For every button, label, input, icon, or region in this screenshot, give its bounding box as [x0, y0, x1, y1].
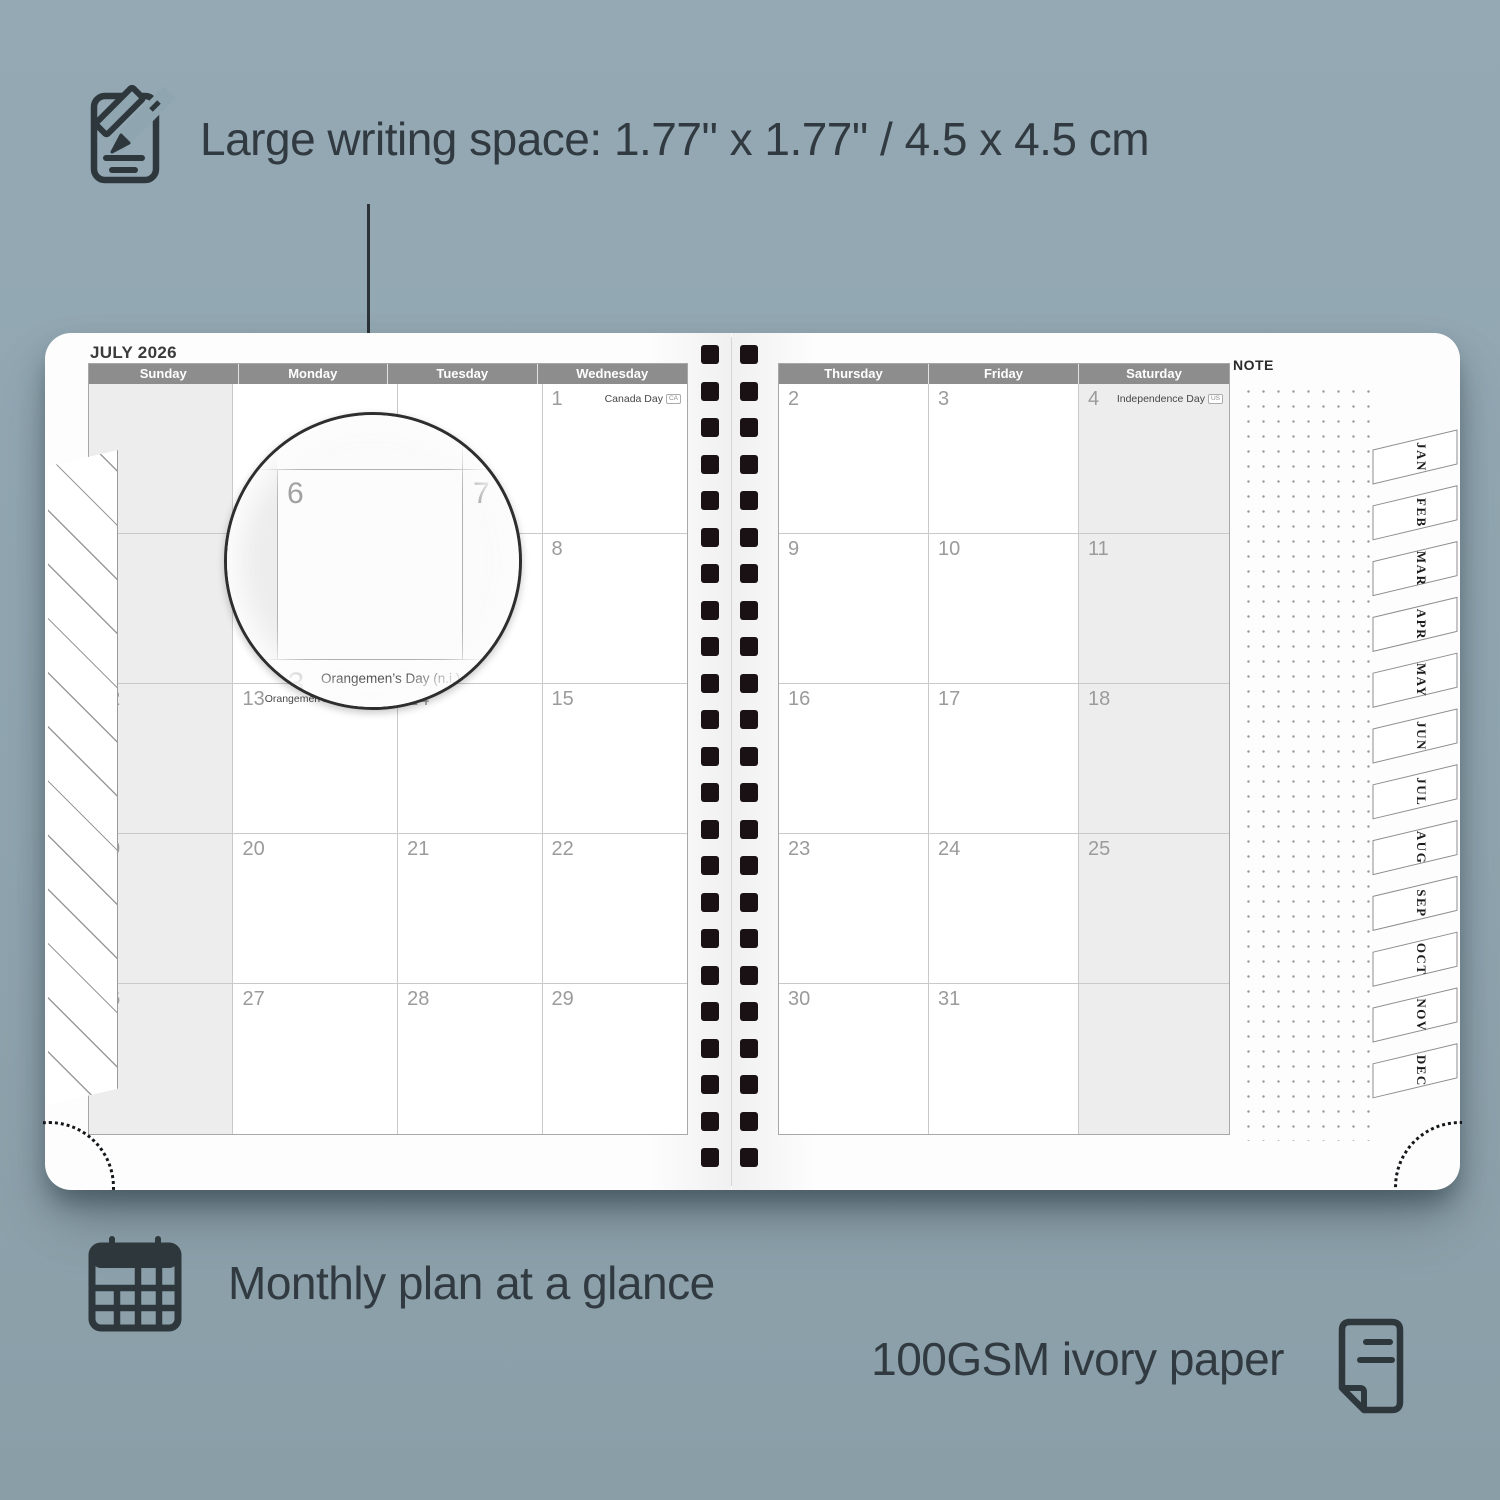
binding-hole [701, 491, 719, 510]
magnified-grid-line [227, 659, 519, 660]
notepad-pencil-icon [88, 80, 180, 191]
binding-hole [740, 382, 758, 401]
binding-hole [701, 1039, 719, 1058]
calendar-cell: 27 [233, 984, 398, 1134]
calendar-cell: 8 [543, 534, 687, 684]
month-tab-label: JUL [1414, 777, 1429, 806]
binding-hole [740, 1039, 758, 1058]
month-tab-label: JAN [1414, 442, 1429, 472]
day-number: 29 [552, 989, 574, 1009]
day-number: 11 [1088, 539, 1109, 559]
binding-hole [701, 382, 719, 401]
day-header-sunday: Sunday [89, 364, 239, 384]
binding-hole [740, 856, 758, 875]
calendar-cell: 30 [779, 984, 929, 1134]
magnified-grid-line [227, 469, 519, 470]
day-header-monday: Monday [239, 364, 389, 384]
month-tab-label: MAY [1414, 663, 1429, 697]
calendar-cell: 21 [398, 834, 542, 984]
month-tab-label: FEB [1414, 498, 1429, 528]
binding-hole [701, 564, 719, 583]
calendar-cell: 16 [779, 684, 929, 834]
binding-hole [701, 345, 719, 364]
stacked-page-edges [48, 450, 118, 1105]
country-badge: US [1208, 394, 1223, 404]
calendar-cell: 23 [779, 834, 929, 984]
binding-hole [701, 966, 719, 985]
binding-hole [701, 1075, 719, 1094]
binding-hole [740, 893, 758, 912]
calendar-cell: 25 [1079, 834, 1229, 984]
binding-hole [701, 929, 719, 948]
calendar-cell: 10 [929, 534, 1079, 684]
magnified-holiday-label: Orangemen’s Day (n.i.) UK [321, 671, 482, 686]
day-number: 28 [407, 989, 429, 1009]
month-tab-label: JUN [1414, 721, 1429, 751]
day-number: 23 [788, 839, 810, 859]
monthly-plan-annotation: Monthly plan at a glance [228, 1256, 715, 1310]
holiday-label: Canada DayCA [605, 393, 681, 405]
day-number: 18 [1088, 689, 1110, 709]
day-number: 25 [1088, 839, 1110, 859]
day-number: 2 [788, 389, 799, 409]
binding-hole [740, 929, 758, 948]
day-number: 22 [552, 839, 574, 859]
day-number: 4 [1088, 389, 1099, 409]
corner-stitch-left [43, 1101, 135, 1190]
writing-space-annotation: Large writing space: 1.77" x 1.77" / 4.5… [200, 112, 1149, 166]
month-title: JULY 2026 [90, 343, 177, 363]
corner-stitch-right [1370, 1101, 1462, 1190]
binding-hole [701, 747, 719, 766]
binding-hole [701, 637, 719, 656]
day-header-saturday: Saturday [1079, 364, 1229, 384]
binding-hole [701, 1148, 719, 1167]
day-number: 8 [552, 539, 563, 559]
binding-hole [701, 1112, 719, 1131]
binding-hole [740, 1075, 758, 1094]
binding-hole [740, 747, 758, 766]
day-number: 10 [938, 539, 960, 559]
day-number: 1 [552, 389, 563, 409]
calendar-cell: 4Independence DayUS [1079, 384, 1229, 534]
calendar-cell: 11 [1079, 534, 1229, 684]
product-image: Large writing space: 1.77" x 1.77" / 4.5… [0, 0, 1500, 1500]
binding-hole [701, 820, 719, 839]
binding-hole [701, 528, 719, 547]
binding-hole [701, 601, 719, 620]
calendar-grid-right: ThursdayFridaySaturday 234Independence D… [778, 363, 1230, 1135]
country-badge: UK [464, 673, 482, 685]
month-tab-label: AUG [1414, 831, 1429, 864]
day-number: 3 [938, 389, 949, 409]
calendar-cell: 2 [779, 384, 929, 534]
binding-hole [740, 710, 758, 729]
calendar-cell: 17 [929, 684, 1079, 834]
binding-hole [701, 455, 719, 474]
binding-hole [740, 418, 758, 437]
calendar-cell: 18 [1079, 684, 1229, 834]
binding-hole [701, 783, 719, 802]
day-header-wednesday: Wednesday [538, 364, 688, 384]
day-number: 30 [788, 989, 810, 1009]
binding-hole [740, 820, 758, 839]
binding-hole [740, 966, 758, 985]
note-label: NOTE [1233, 357, 1274, 373]
binding-hole [701, 418, 719, 437]
paper-sheet-icon [1322, 1316, 1414, 1423]
binding-hole [701, 1002, 719, 1021]
binding-hole [740, 674, 758, 693]
binding-holes-left [701, 345, 719, 1185]
magnified-day-number: 6 [287, 477, 304, 511]
month-tab-stack: JANFEBMARAPRMAYJUNJULAUGSEPOCTNOVDEC [1372, 428, 1460, 1108]
day-number: 21 [407, 839, 429, 859]
day-number: 17 [938, 689, 960, 709]
month-tab-label: MAR [1414, 551, 1429, 587]
calendar-cell: 22 [543, 834, 687, 984]
day-number: 15 [552, 689, 574, 709]
country-badge: CA [666, 394, 681, 404]
magnified-day-number: 7 [473, 477, 490, 511]
calendar-cell: 9 [779, 534, 929, 684]
month-tab-label: APR [1414, 609, 1429, 640]
binding-hole [740, 345, 758, 364]
month-tab-label: OCT [1414, 943, 1429, 976]
holiday-label: Independence DayUS [1117, 393, 1223, 405]
binding-hole [740, 1148, 758, 1167]
note-dot-grid [1238, 381, 1371, 1141]
binding-hole [740, 1002, 758, 1021]
day-number: 20 [242, 839, 264, 859]
binding-hole [740, 1112, 758, 1131]
calendar-cell: 28 [398, 984, 542, 1134]
binding-hole [701, 893, 719, 912]
binding-hole [740, 528, 758, 547]
binding-hole [701, 856, 719, 875]
binding-hole [740, 637, 758, 656]
month-tab-label: SEP [1414, 889, 1429, 917]
day-number: 24 [938, 839, 960, 859]
calendar-cell: 24 [929, 834, 1079, 984]
magnifier-circle: 6 7 13 Orangemen’s Day (n.i.) UK [224, 412, 522, 710]
day-header-tuesday: Tuesday [388, 364, 538, 384]
binding-hole [740, 783, 758, 802]
binding-hole [740, 564, 758, 583]
day-number: 9 [788, 539, 799, 559]
day-number: 31 [938, 989, 960, 1009]
magnified-grid-line [462, 421, 463, 660]
calendar-cell: 3 [929, 384, 1079, 534]
magnified-day-number: 13 [271, 667, 304, 701]
binding-hole [701, 710, 719, 729]
calendar-cell: 29 [543, 984, 687, 1134]
calendar-grid-icon [86, 1236, 184, 1339]
magnified-writing-cell [277, 469, 462, 659]
binding-hole [701, 674, 719, 693]
calendar-cell: 31 [929, 984, 1079, 1134]
month-tab-label: NOV [1414, 998, 1429, 1031]
binding-hole [740, 491, 758, 510]
calendar-cell: 1Canada DayCA [543, 384, 687, 534]
binding-hole [740, 601, 758, 620]
calendar-cell [1079, 984, 1229, 1134]
page-divider [731, 337, 732, 1186]
day-header-friday: Friday [929, 364, 1079, 384]
binding-holes-right [740, 345, 758, 1185]
paper-annotation: 100GSM ivory paper [871, 1332, 1284, 1386]
calendar-cell: 15 [543, 684, 687, 834]
calendar-cell: 20 [233, 834, 398, 984]
day-number: 16 [788, 689, 810, 709]
month-tab-label: DEC [1414, 1055, 1429, 1087]
day-number: 27 [242, 989, 264, 1009]
day-header-thursday: Thursday [779, 364, 929, 384]
binding-hole [740, 455, 758, 474]
magnified-grid-line [277, 469, 278, 659]
